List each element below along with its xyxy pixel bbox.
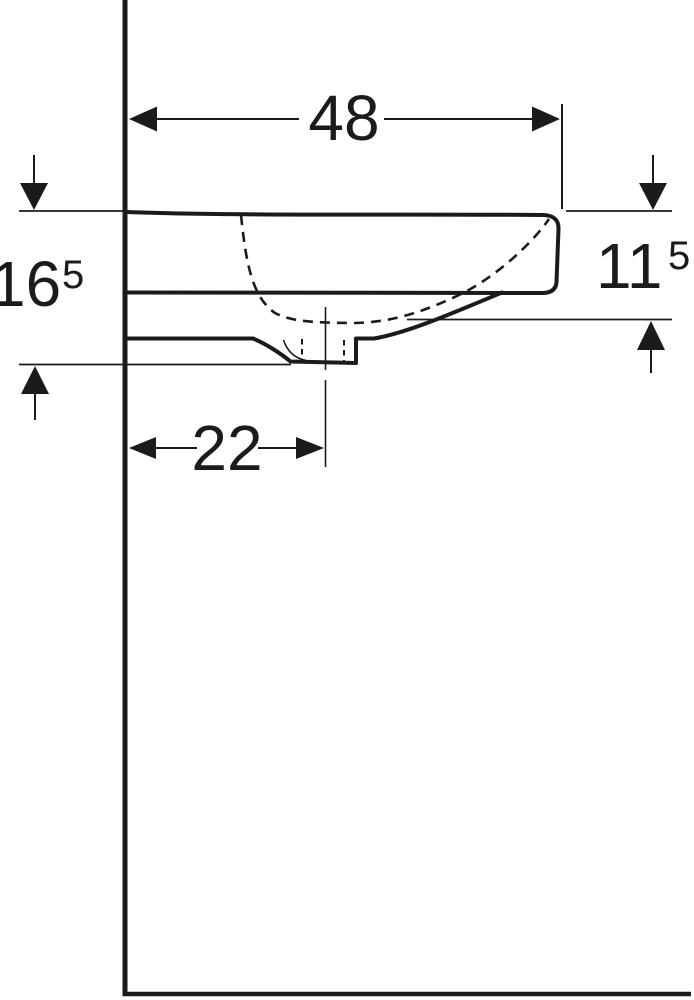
dimension-top-width: 48: [129, 82, 562, 209]
dimension-right-height: 11 5: [407, 155, 690, 373]
arrowhead-up-icon: [21, 366, 49, 394]
arrowhead-left-icon: [129, 437, 156, 459]
arrowhead-down-icon: [639, 183, 667, 210]
arrowhead-down-icon: [20, 183, 48, 210]
dimension-label-11: 11: [596, 230, 662, 302]
washbasin-side-profile-drawing: 48 16 5 11 5: [0, 0, 694, 1000]
technical-drawing-page: 48 16 5 11 5: [0, 0, 694, 1000]
dimension-label-16-superscript: 5: [62, 253, 84, 297]
dimension-label-48: 48: [308, 82, 379, 154]
dimension-label-16: 16: [0, 248, 61, 320]
basin-rim-outline: [127, 212, 559, 293]
basin-inner-contour-dashed: [241, 215, 549, 323]
dimension-drain-offset: 22: [129, 412, 324, 484]
arrowhead-right-icon: [296, 437, 324, 459]
dimension-label-11-superscript: 5: [668, 234, 690, 278]
arrowhead-left-icon: [129, 107, 157, 132]
arrowhead-up-icon: [637, 321, 665, 350]
dimension-label-22: 22: [191, 412, 262, 484]
basin-underside-and-drain-boss: [127, 293, 502, 364]
arrowhead-right-icon: [532, 107, 560, 132]
dimension-left-height: 16 5: [0, 155, 291, 420]
